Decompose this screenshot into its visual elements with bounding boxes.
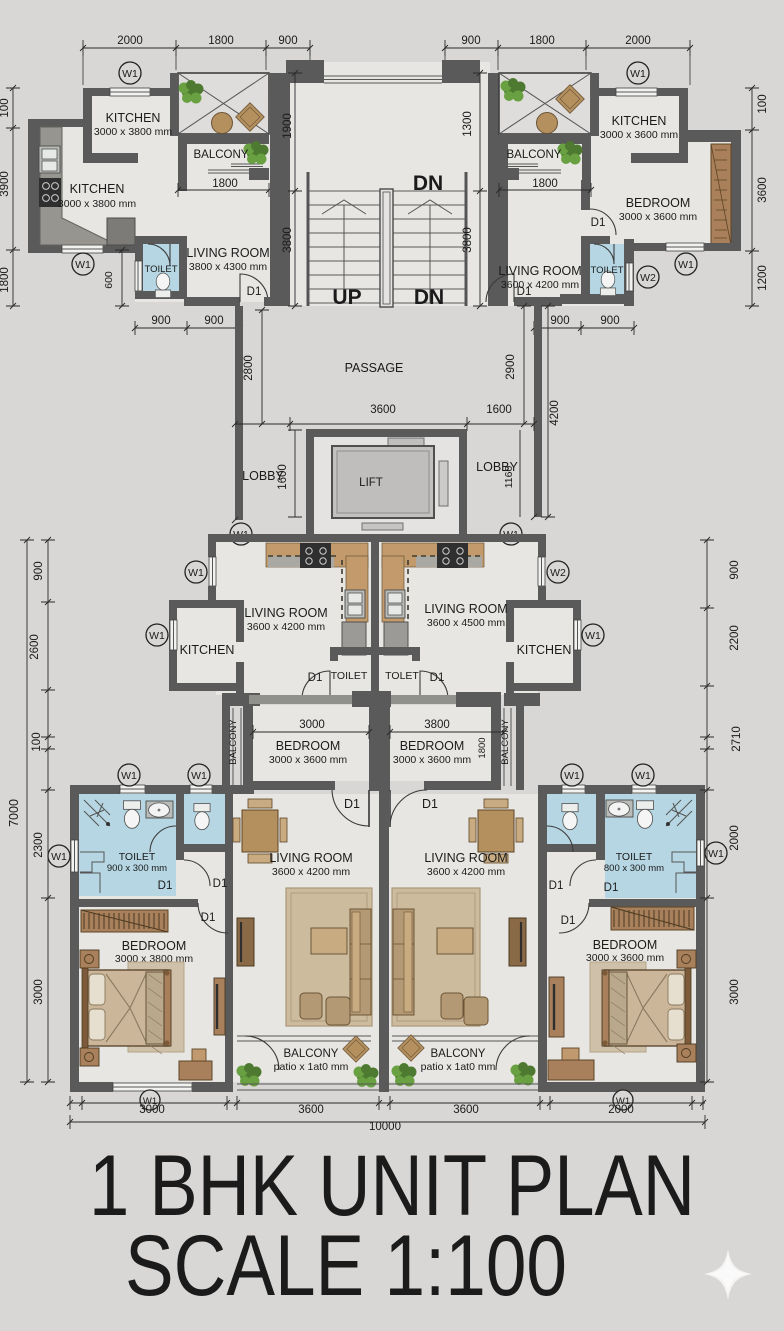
svg-text:W1: W1: [635, 770, 651, 782]
svg-text:3000: 3000: [139, 1104, 165, 1116]
svg-text:DN: DN: [414, 286, 444, 309]
svg-text:1800: 1800: [529, 35, 555, 47]
svg-text:LOBBY: LOBBY: [242, 469, 284, 483]
svg-text:W1: W1: [630, 68, 646, 80]
svg-text:TOILET: TOILET: [616, 851, 653, 863]
svg-text:SCALE 1:100: SCALE 1:100: [125, 1218, 567, 1314]
svg-text:900: 900: [151, 315, 170, 327]
svg-text:TOILET: TOILET: [331, 670, 368, 682]
svg-text:D1: D1: [213, 878, 228, 890]
svg-text:W1: W1: [585, 630, 601, 642]
svg-text:3600: 3600: [757, 177, 769, 203]
svg-text:KITCHEN: KITCHEN: [612, 114, 667, 128]
svg-text:TOLET: TOLET: [385, 670, 419, 682]
svg-text:2000: 2000: [625, 35, 651, 47]
svg-text:600: 600: [103, 271, 115, 289]
svg-text:1800: 1800: [532, 178, 558, 190]
svg-text:W1: W1: [51, 851, 67, 863]
svg-text:3600: 3600: [370, 404, 396, 416]
svg-text:3600 x 4200 mm: 3600 x 4200 mm: [427, 866, 505, 878]
svg-text:BALCONY: BALCONY: [284, 1048, 339, 1060]
svg-text:D1: D1: [201, 912, 216, 924]
svg-text:2900: 2900: [505, 354, 517, 380]
svg-text:TOILET: TOILET: [590, 265, 623, 276]
svg-text:4200: 4200: [549, 400, 561, 426]
svg-text:BEDROOM: BEDROOM: [626, 196, 691, 210]
svg-text:3800 x 4300 mm: 3800 x 4300 mm: [189, 261, 267, 273]
svg-text:D1: D1: [422, 797, 438, 811]
svg-text:3600 x 4200 mm: 3600 x 4200 mm: [501, 279, 579, 291]
svg-text:2300: 2300: [33, 832, 45, 858]
svg-text:1600: 1600: [486, 404, 512, 416]
svg-text:LIVING ROOM: LIVING ROOM: [269, 851, 352, 865]
svg-text:LIVING ROOM: LIVING ROOM: [424, 851, 507, 865]
svg-text:W1: W1: [122, 68, 138, 80]
svg-text:BALCONY: BALCONY: [431, 1048, 486, 1060]
svg-text:3600 x 4200 mm: 3600 x 4200 mm: [272, 866, 350, 878]
svg-text:W1: W1: [678, 259, 694, 271]
svg-text:patio x 1at0 mm: patio x 1at0 mm: [274, 1061, 349, 1073]
svg-text:BEDROOM: BEDROOM: [122, 939, 187, 953]
svg-text:2000: 2000: [117, 35, 143, 47]
svg-text:BEDROOM: BEDROOM: [400, 739, 465, 753]
svg-text:1900: 1900: [282, 113, 294, 139]
svg-text:LIFT: LIFT: [359, 477, 383, 489]
svg-text:PASSAGE: PASSAGE: [345, 361, 404, 375]
svg-text:D1: D1: [308, 672, 323, 684]
svg-text:900: 900: [600, 315, 619, 327]
svg-text:2000: 2000: [608, 1104, 634, 1116]
svg-text:W1: W1: [149, 630, 165, 642]
svg-text:BEDROOM: BEDROOM: [276, 739, 341, 753]
svg-text:2200: 2200: [729, 625, 741, 651]
svg-text:BALCONY: BALCONY: [507, 149, 562, 161]
svg-text:900: 900: [33, 561, 45, 580]
svg-text:3600 x 4200 mm: 3600 x 4200 mm: [247, 621, 325, 633]
svg-text:3000 x 3800 mm: 3000 x 3800 mm: [94, 126, 172, 138]
svg-text:W2: W2: [550, 567, 566, 579]
svg-text:LOBBY: LOBBY: [476, 460, 518, 474]
svg-text:W2: W2: [640, 272, 656, 284]
svg-text:UP: UP: [332, 286, 361, 309]
svg-text:3000: 3000: [729, 979, 741, 1005]
svg-text:W1: W1: [188, 567, 204, 579]
svg-text:W1: W1: [564, 770, 580, 782]
svg-text:3600 x 4500 mm: 3600 x 4500 mm: [427, 617, 505, 629]
svg-text:KITCHEN: KITCHEN: [517, 643, 572, 657]
svg-text:KITCHEN: KITCHEN: [180, 643, 235, 657]
svg-text:2000: 2000: [729, 825, 741, 851]
svg-text:W1: W1: [75, 259, 91, 271]
svg-text:3600: 3600: [453, 1104, 479, 1116]
svg-text:900: 900: [550, 315, 569, 327]
svg-text:900 x 300 mm: 900 x 300 mm: [107, 863, 167, 874]
svg-text:100: 100: [757, 94, 769, 113]
svg-text:W1: W1: [121, 770, 137, 782]
svg-text:3800: 3800: [424, 719, 450, 731]
svg-text:D1: D1: [247, 286, 262, 298]
svg-text:100: 100: [31, 732, 43, 751]
svg-text:2600: 2600: [29, 634, 41, 660]
svg-text:3000: 3000: [299, 719, 325, 731]
svg-text:3800: 3800: [282, 227, 294, 253]
svg-text:900: 900: [729, 560, 741, 579]
svg-text:LIVING ROOM: LIVING ROOM: [244, 606, 327, 620]
svg-text:D1: D1: [591, 217, 606, 229]
svg-text:D1: D1: [549, 880, 564, 892]
svg-text:1300: 1300: [462, 111, 474, 137]
svg-text:2800: 2800: [243, 355, 255, 381]
svg-text:100: 100: [0, 98, 11, 117]
svg-text:BEDROOM: BEDROOM: [593, 938, 658, 952]
svg-text:D1: D1: [430, 672, 445, 684]
svg-text:3900: 3900: [0, 171, 11, 197]
svg-text:1800: 1800: [208, 35, 234, 47]
svg-text:LIVING ROOM: LIVING ROOM: [498, 264, 581, 278]
svg-text:800 x 300 mm: 800 x 300 mm: [604, 863, 664, 874]
svg-text:900: 900: [461, 35, 480, 47]
svg-text:KITCHEN: KITCHEN: [70, 182, 125, 196]
svg-text:3000 x 3600 mm: 3000 x 3600 mm: [619, 211, 697, 223]
svg-text:D1: D1: [158, 880, 173, 892]
svg-text:3600: 3600: [298, 1104, 324, 1116]
svg-text:TOILET: TOILET: [119, 851, 156, 863]
svg-text:KITCHEN: KITCHEN: [106, 111, 161, 125]
svg-text:TOILET: TOILET: [144, 264, 177, 275]
svg-text:BALCONY: BALCONY: [228, 719, 239, 765]
svg-text:D1: D1: [561, 915, 576, 927]
svg-text:LIVING ROOM: LIVING ROOM: [186, 246, 269, 260]
svg-text:W1: W1: [708, 848, 724, 860]
svg-text:900: 900: [278, 35, 297, 47]
svg-text:3000 x 3600 mm: 3000 x 3600 mm: [269, 754, 347, 766]
svg-text:1200: 1200: [757, 265, 769, 291]
svg-text:3000 x 3600 mm: 3000 x 3600 mm: [393, 754, 471, 766]
svg-text:10000: 10000: [369, 1121, 401, 1133]
svg-text:LIVING ROOM: LIVING ROOM: [424, 602, 507, 616]
svg-text:W1: W1: [191, 770, 207, 782]
svg-text:2710: 2710: [731, 726, 743, 752]
svg-text:D1: D1: [604, 882, 619, 894]
svg-text:1800: 1800: [212, 178, 238, 190]
svg-text:3000 x 3600 mm: 3000 x 3600 mm: [600, 129, 678, 141]
svg-text:3000 x 3800 mm: 3000 x 3800 mm: [58, 198, 136, 210]
svg-text:900: 900: [204, 315, 223, 327]
svg-text:BALCONY: BALCONY: [194, 149, 249, 161]
svg-text:D1: D1: [344, 797, 360, 811]
svg-text:patio x 1at0 mm: patio x 1at0 mm: [421, 1061, 496, 1073]
svg-text:7000: 7000: [7, 799, 21, 827]
svg-text:1800: 1800: [0, 267, 11, 293]
svg-text:3800: 3800: [462, 227, 474, 253]
svg-text:3000: 3000: [33, 979, 45, 1005]
svg-text:DN: DN: [413, 172, 443, 195]
svg-text:BALCONY: BALCONY: [500, 719, 511, 765]
svg-text:1800: 1800: [477, 737, 488, 758]
